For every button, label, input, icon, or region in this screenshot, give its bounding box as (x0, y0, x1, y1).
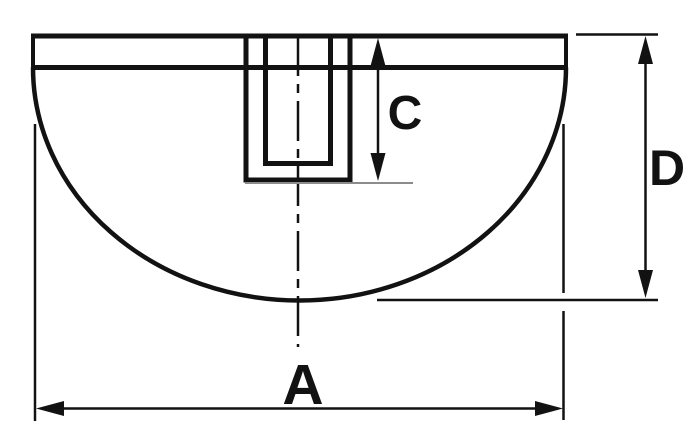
dim-d-arrowhead-bottom (638, 270, 653, 298)
dim-a-arrowhead-left (36, 401, 64, 416)
technical-drawing-canvas: C D A (0, 0, 700, 436)
part-outline (31, 34, 568, 301)
dim-label-width: A (282, 353, 323, 417)
half-ball-knob-drawing: C D A (0, 0, 700, 436)
dim-label-height: D (649, 140, 685, 196)
dim-a-arrowhead-right (535, 401, 563, 416)
dim-label-hole-depth: C (388, 87, 423, 140)
dim-c-arrowhead-bottom (371, 153, 386, 181)
dimension-d: D (377, 35, 685, 301)
dim-d-arrowhead-top (638, 36, 653, 64)
dim-c-arrowhead-top (371, 38, 386, 66)
